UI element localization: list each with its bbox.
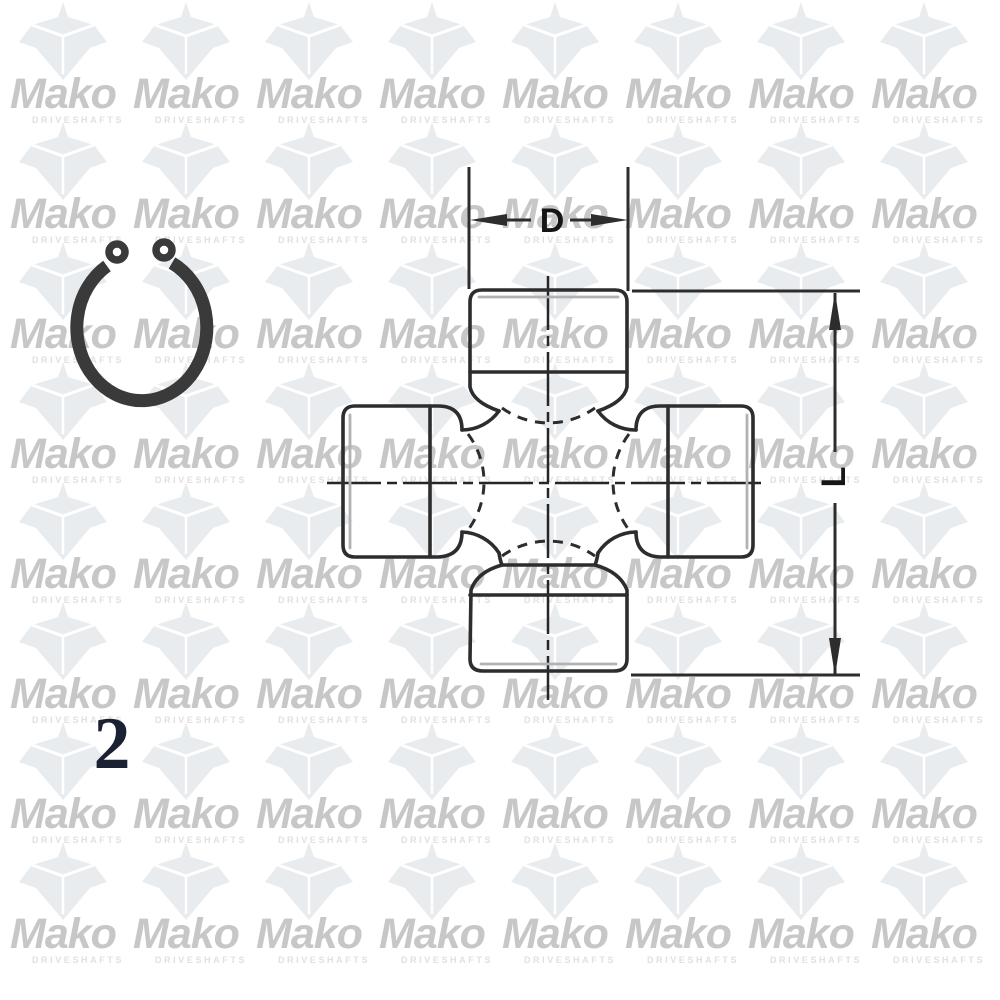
dim-l-arrow-top bbox=[829, 292, 841, 330]
snap-ring-body bbox=[77, 263, 207, 401]
snap-ring-lug-right bbox=[156, 242, 172, 258]
dim-d-arrow-right bbox=[591, 214, 628, 226]
diagram-svg: D L 2 bbox=[0, 0, 1000, 1000]
u-joint-cross bbox=[327, 276, 766, 700]
figure-canvas: MakoDRIVESHAFTSMakoDRIVESHAFTSMakoDRIVES… bbox=[0, 0, 1000, 1000]
figure-number: 2 bbox=[94, 703, 131, 785]
snap-ring-lug-left bbox=[109, 244, 125, 260]
dim-l-label: L bbox=[815, 467, 853, 488]
dim-l-label-group: L bbox=[815, 467, 853, 488]
dimension-d: D bbox=[469, 167, 628, 291]
dim-l-arrow-bottom bbox=[829, 638, 841, 676]
dim-d-label: D bbox=[540, 202, 565, 240]
snap-ring bbox=[77, 242, 207, 401]
dim-d-arrow-left bbox=[470, 214, 507, 226]
cross-right-cap bbox=[636, 406, 753, 557]
cross-left-cap bbox=[343, 406, 462, 557]
